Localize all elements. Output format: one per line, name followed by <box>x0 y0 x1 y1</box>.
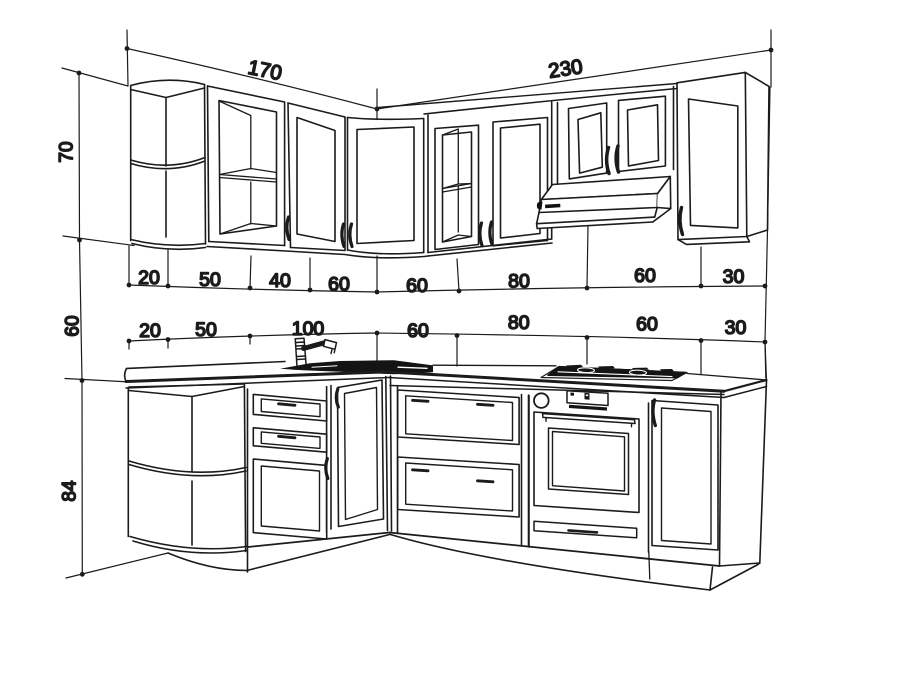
svg-text:60: 60 <box>634 265 656 287</box>
svg-text:60: 60 <box>406 275 428 297</box>
svg-text:80: 80 <box>508 271 530 293</box>
svg-text:100: 100 <box>292 318 325 340</box>
svg-text:20: 20 <box>139 320 161 342</box>
svg-text:80: 80 <box>508 312 530 334</box>
svg-text:84: 84 <box>60 480 81 502</box>
svg-text:30: 30 <box>725 317 747 339</box>
svg-text:60: 60 <box>636 314 658 336</box>
svg-text:70: 70 <box>57 141 78 162</box>
svg-text:60: 60 <box>328 274 350 296</box>
svg-text:60: 60 <box>63 315 84 336</box>
svg-text:60: 60 <box>407 320 429 342</box>
svg-text:30: 30 <box>723 266 745 288</box>
svg-text:50: 50 <box>195 319 217 341</box>
svg-text:20: 20 <box>138 267 160 289</box>
svg-text:40: 40 <box>269 270 291 292</box>
svg-text:50: 50 <box>199 269 221 291</box>
